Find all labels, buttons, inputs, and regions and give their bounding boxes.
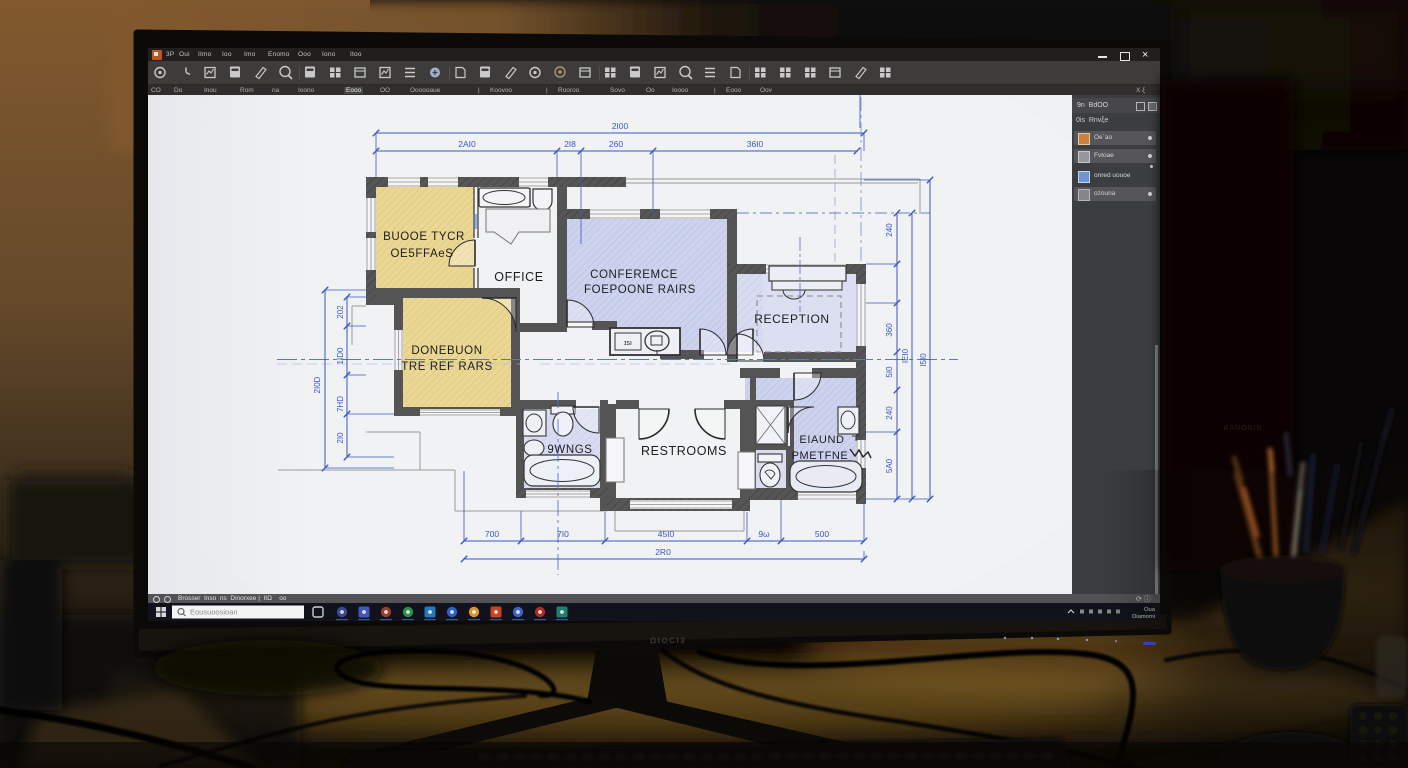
svg-text:BANONIB: BANONIB: [1224, 425, 1263, 432]
